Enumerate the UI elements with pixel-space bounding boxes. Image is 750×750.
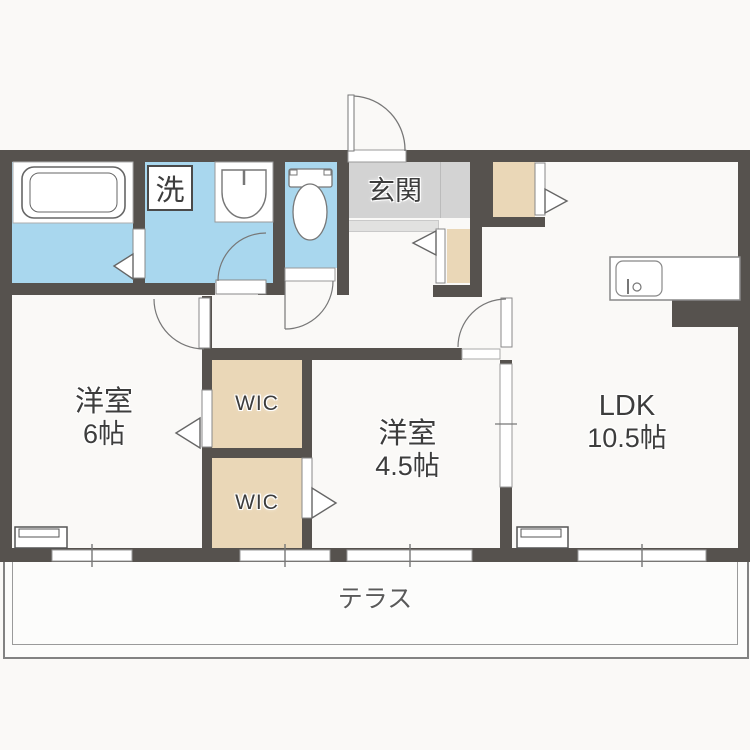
window-bedroom2: [347, 544, 472, 567]
washroom-door: [216, 233, 266, 294]
wic-lower-label: WIC: [212, 458, 302, 548]
wic-upper-door: [176, 390, 212, 448]
washbasin: [215, 162, 273, 222]
kitchen-counter: [610, 257, 740, 300]
bedroom2-label: 洋室 4.5帖: [340, 418, 475, 482]
terrace-label: テラス: [0, 585, 750, 614]
wic-upper-label: WIC: [212, 360, 302, 448]
window-ldk: [578, 544, 706, 567]
floor-plan: 玄関 洗 洋室 6帖 WIC WIC 洋室 4.5帖 LDK 10.5帖 テラス: [0, 0, 750, 750]
bedroom1-sill-box: [15, 527, 67, 548]
ldk-sill-box: [517, 527, 568, 548]
bathroom-door: [114, 229, 145, 279]
shoe-closet-door: [535, 163, 567, 215]
bedroom1-label: 洋室 6帖: [39, 386, 169, 450]
entry-label: 玄関: [345, 176, 445, 207]
toilet-door: [285, 268, 335, 329]
laundry-label: 洗: [147, 165, 193, 211]
bathtub: [13, 162, 133, 223]
bedroom1-door: [154, 298, 210, 349]
hall-closet-door: [413, 229, 445, 283]
ldk-label: LDK 10.5帖: [548, 390, 706, 454]
bedroom2-ldk-sliding-door: [495, 364, 517, 487]
fixtures-and-doors: [0, 0, 750, 750]
toilet: [289, 169, 332, 240]
wic-lower-door: [302, 458, 336, 518]
entrance-door: [348, 95, 406, 162]
bedroom2-door: [458, 298, 512, 359]
